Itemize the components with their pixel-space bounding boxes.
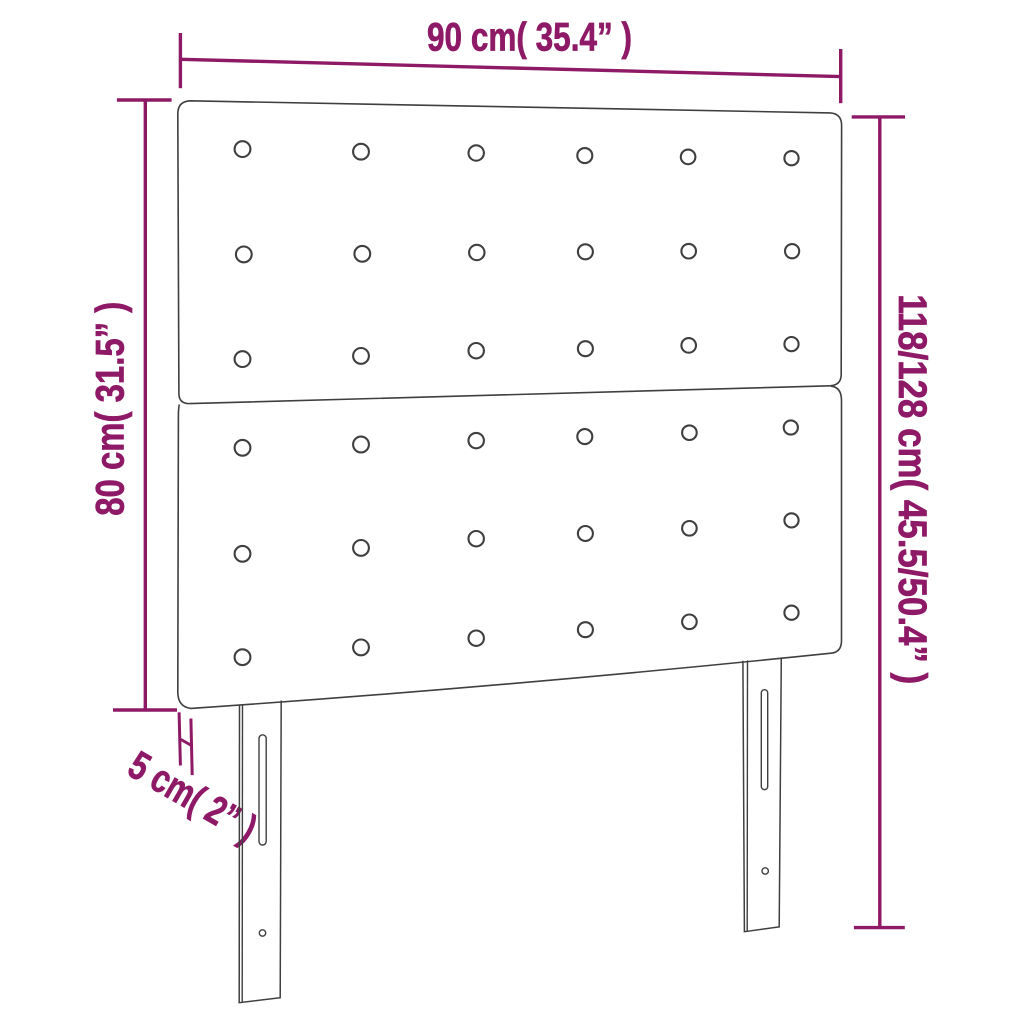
svg-text:118/128 cm( 45.5/50.4” ): 118/128 cm( 45.5/50.4” ): [890, 294, 934, 684]
svg-text:90 cm( 35.4” ): 90 cm( 35.4” ): [427, 16, 632, 60]
svg-text:80 cm( 31.5” ): 80 cm( 31.5” ): [89, 302, 133, 516]
